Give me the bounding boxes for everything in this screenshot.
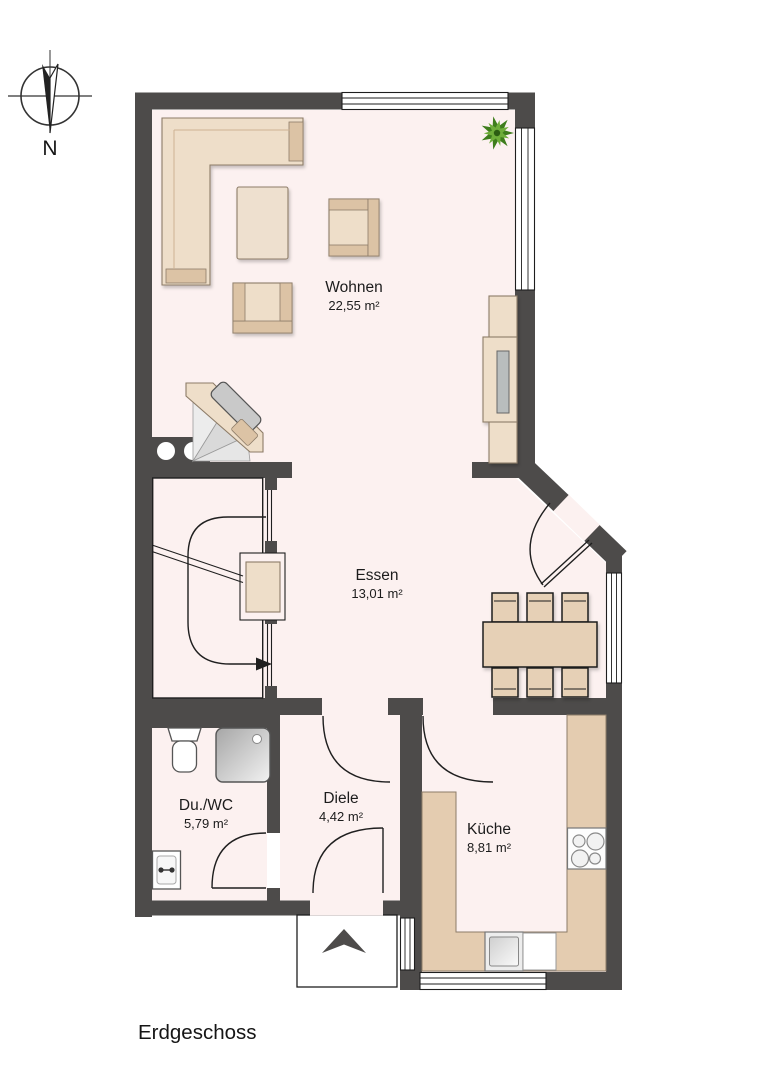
room-name: Küche	[467, 820, 511, 840]
compass-rose-icon	[8, 50, 92, 133]
room-area: 4,42 m²	[319, 809, 363, 826]
room-label-kueche: Küche 8,81 m²	[467, 820, 511, 857]
room-name: Du./WC	[179, 796, 233, 816]
room-label-diele: Diele 4,42 m²	[319, 789, 363, 826]
entrance-porch	[297, 901, 397, 988]
room-label-essen: Essen 13,01 m²	[351, 566, 402, 603]
window-top	[342, 93, 508, 110]
dining-table	[483, 622, 597, 667]
kitchen-appliance	[523, 933, 556, 970]
armchair-right	[329, 199, 379, 256]
window-kueche-bottom	[420, 973, 546, 990]
kitchen-sink	[485, 932, 523, 971]
window-wohnen-right	[516, 128, 535, 290]
toilet	[168, 728, 201, 772]
room-name: Essen	[351, 566, 402, 586]
floorplan-drawing	[0, 0, 764, 1080]
dining-set	[483, 593, 597, 697]
coffee-table	[237, 187, 288, 259]
armchair-bottom	[233, 283, 292, 333]
cooktop	[568, 828, 607, 869]
room-area: 13,01 m²	[351, 586, 402, 603]
window-kueche-left	[401, 918, 415, 970]
floor-title: Erdgeschoss	[138, 1021, 257, 1045]
room-area: 8,81 m²	[467, 840, 511, 857]
room-label-duwc: Du./WC 5,79 m²	[179, 796, 233, 833]
room-area: 5,79 m²	[179, 816, 233, 833]
room-name: Diele	[319, 789, 363, 809]
compass-north-label: N	[42, 137, 57, 161]
room-area: 22,55 m²	[325, 298, 382, 315]
shower	[216, 728, 270, 782]
floorplan-page: Wohnen 22,55 m² Essen 13,01 m² Du./WC 5,…	[0, 0, 764, 1080]
washbasin	[153, 851, 181, 889]
room-label-wohnen: Wohnen 22,55 m²	[325, 278, 382, 315]
room-name: Wohnen	[325, 278, 382, 298]
window-essen-right	[607, 573, 622, 683]
